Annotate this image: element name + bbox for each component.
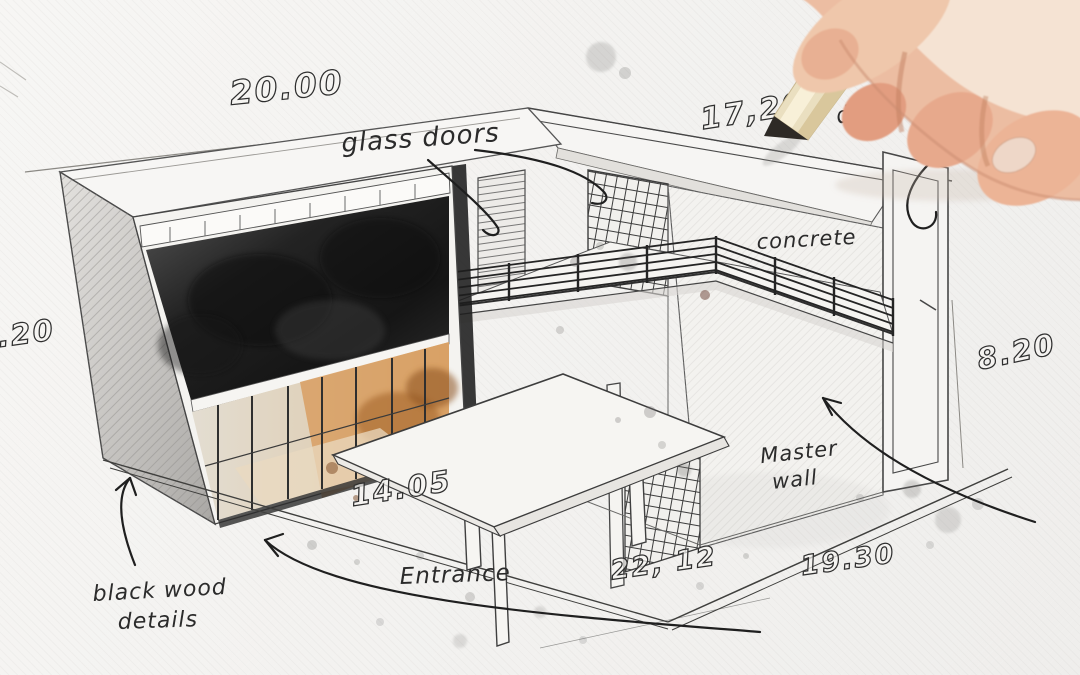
entrance-label: Entrance [399,560,511,590]
frame-extension-line [952,300,963,468]
master-wall-label-2: wall [771,465,819,494]
black-wood-label-2: details [117,607,198,635]
entrance-arrowhead-a [265,534,283,540]
black-wood-label-1: black wood [92,575,227,607]
black-wood-arrowhead-b [130,478,136,495]
dim-top-label: 20.00 [228,62,346,113]
sketch-canvas: 20.00 glass doors 17,20 a de concrete 8.… [0,0,1080,675]
black-wood-arrow [121,478,135,565]
architectural-sketch-photo: 20.00 glass doors 17,20 a de concrete 8.… [0,0,1080,675]
dim-right-label: 8.20 [974,327,1059,377]
corner-construction-lines [0,62,26,97]
dim-left-label: 8.20 [0,312,57,357]
black-wood-arrowhead-a [116,478,130,490]
